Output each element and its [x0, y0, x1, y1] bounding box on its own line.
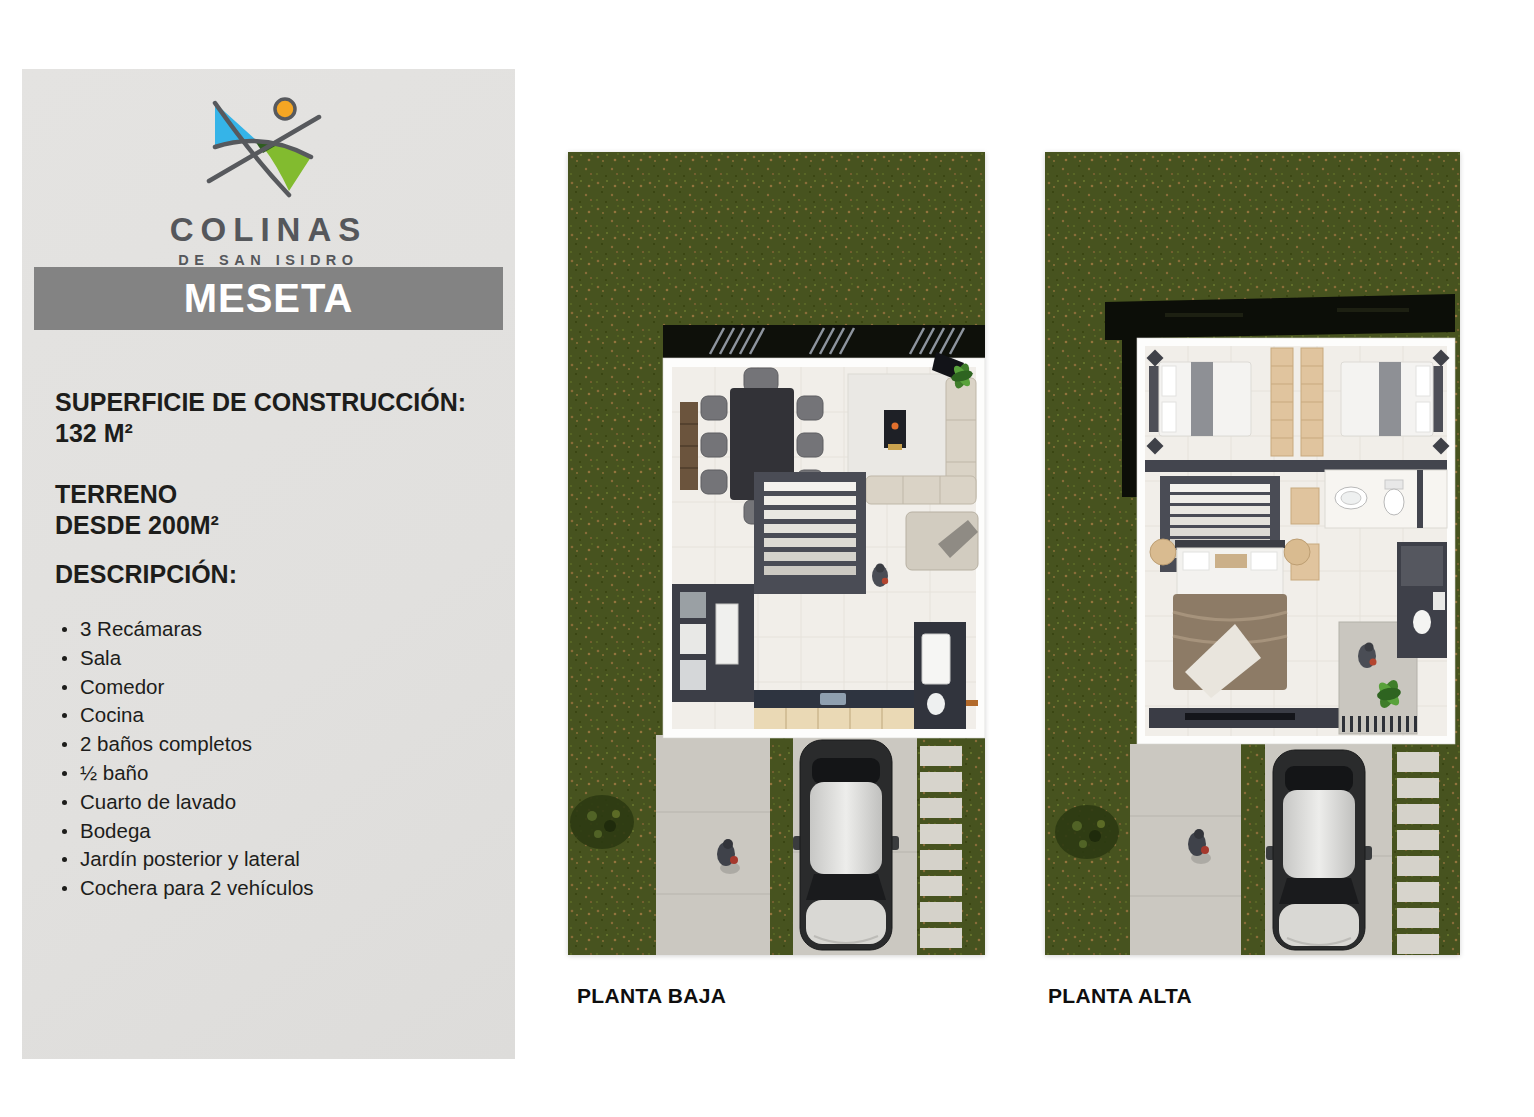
house-ground-floor — [663, 325, 985, 738]
logo-block: COLINAS DE SAN ISIDRO — [22, 95, 515, 268]
feature-item: Cochera para 2 vehículos — [55, 874, 499, 903]
info-panel: COLINAS DE SAN ISIDRO MESETA SUPERFICIE … — [22, 69, 515, 1059]
car — [793, 740, 899, 950]
feature-list: 3 Recámaras Sala Comedor Cocina 2 baños … — [55, 615, 499, 903]
kitchen-sink — [820, 693, 846, 705]
feature-item: 2 baños completos — [55, 730, 499, 759]
bathroom-ensuite — [1397, 542, 1447, 658]
plan-label-planta-baja: PLANTA BAJA — [577, 984, 726, 1008]
terrain-spec: TERRENO DESDE 200M² — [55, 479, 495, 541]
feature-item: Cuarto de lavado — [55, 788, 499, 817]
floor-plan-planta-baja — [568, 152, 985, 955]
model-name: MESETA — [184, 276, 354, 321]
staircase — [754, 472, 866, 594]
feature-item: Comedor — [55, 673, 499, 702]
model-name-banner: MESETA — [34, 267, 503, 330]
car — [1266, 750, 1372, 950]
feature-item: Cocina — [55, 701, 499, 730]
description-heading: DESCRIPCIÓN: — [55, 559, 495, 590]
feature-item: 3 Recámaras — [55, 615, 499, 644]
terrain-label: TERRENO — [55, 479, 495, 510]
wood-landing — [1291, 488, 1319, 524]
laundry-room — [672, 584, 754, 702]
plan-label-planta-alta: PLANTA ALTA — [1048, 984, 1192, 1008]
garden-bush — [1055, 805, 1119, 859]
floor-plan-planta-alta — [1045, 152, 1460, 955]
kitchen — [754, 690, 914, 729]
half-bath — [914, 622, 966, 729]
grass-median — [770, 735, 793, 955]
feature-item: Jardín posterior y lateral — [55, 845, 499, 874]
house-upper-floor — [1137, 338, 1455, 744]
construction-label: SUPERFICIE DE CONSTRUCCIÓN: — [55, 387, 495, 418]
feature-item: Sala — [55, 644, 499, 673]
terrain-value: DESDE 200M² — [55, 510, 495, 541]
construction-spec: SUPERFICIE DE CONSTRUCCIÓN: 132 M² — [55, 387, 495, 449]
brochure-page: COLINAS DE SAN ISIDRO MESETA SUPERFICIE … — [0, 0, 1534, 1117]
colinas-logo-icon — [193, 95, 345, 207]
armchair-sofa — [906, 512, 978, 570]
feature-item: Bodega — [55, 817, 499, 846]
brand-name: COLINAS — [22, 211, 515, 249]
tv — [1185, 713, 1295, 720]
feature-item: ½ baño — [55, 759, 499, 788]
entry-accent — [966, 700, 978, 706]
garden-bush — [570, 795, 634, 849]
brand-subtitle: DE SAN ISIDRO — [22, 252, 515, 268]
grass-median — [1241, 744, 1265, 955]
construction-value: 132 M² — [55, 418, 495, 449]
bathroom-shared — [1325, 470, 1447, 528]
